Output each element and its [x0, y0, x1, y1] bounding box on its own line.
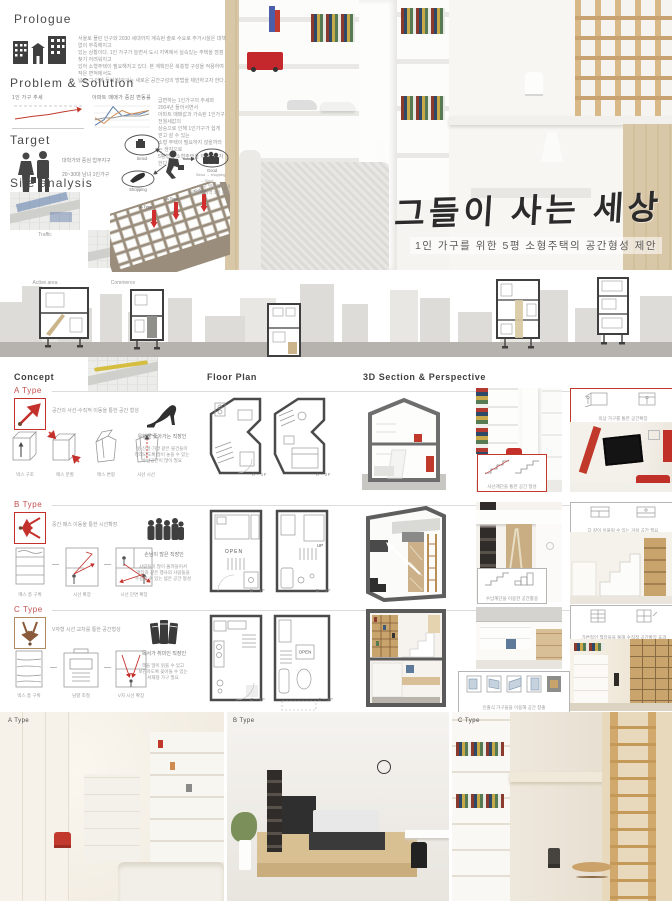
- red-diagonal-panel: [579, 426, 601, 474]
- headboard: [282, 796, 316, 834]
- wardrobe-wall: [0, 712, 70, 901]
- wood-table: [572, 862, 612, 872]
- white-bed: [118, 862, 224, 901]
- v-arrows-icon: [15, 618, 45, 648]
- site-axonometric: 인구 밀집지역 내 가로활성지역 3곳 선정 A Type B Type C T…: [110, 182, 230, 272]
- desc-line: 파티와 같은 행사의 사람들을: [136, 570, 189, 575]
- wall-clock-small: [546, 542, 554, 550]
- bed-frame: [309, 832, 385, 850]
- render-a-type: A Type: [0, 712, 224, 901]
- desc-line: 수납공간이 많이 필요: [142, 458, 182, 463]
- a-diagram-label: 박스 구조: [6, 472, 44, 478]
- sofa: [239, 162, 389, 270]
- a-diagram-label: 매스 변형: [87, 472, 125, 478]
- row-c-type: C Type V자형 시선 교차를 통한 공간형성: [0, 605, 672, 712]
- note-line: 급변하는 1인가구의 추세와 2004년 들어서면서: [158, 98, 214, 111]
- sofa-armrest: [239, 150, 261, 270]
- a-diagram-deform: [88, 424, 124, 466]
- plan-a-1f: [208, 396, 266, 476]
- plan-a1f-label: A - 1F: [252, 472, 267, 477]
- b-3d-axon: [362, 504, 450, 602]
- poster-title: 그들이 사는 세상: [393, 181, 663, 236]
- sightline-arrows-icon: [15, 513, 45, 543]
- prologue-heading: Prologue: [14, 12, 72, 26]
- red-chair: [54, 832, 71, 845]
- photo-book-spines: [476, 388, 488, 454]
- desc-line: 보관하도록 꽂아둘 수 있는: [138, 669, 187, 674]
- plant-flowers: [231, 812, 257, 842]
- row-b-type: B Type 중간 매스 이동을 통한 시선확장: [0, 500, 672, 605]
- a-concept-text: 공간의 사선·수직적 이동을 통한 공간 형성: [52, 408, 139, 415]
- target-line: 대학가와 중심 업무지구: [62, 158, 111, 164]
- storage-stair-sketch-icon: [483, 571, 541, 587]
- mid-shelf: [84, 774, 140, 862]
- black-tv-panel: [603, 434, 644, 466]
- c-type-concept-icon: [14, 617, 46, 649]
- c-type-label: C Type: [14, 605, 43, 614]
- stair-sketch-icon: [483, 457, 541, 475]
- c-diagram-label: 남향 조절: [60, 693, 102, 699]
- white-stairs-sketchrender: [570, 532, 672, 604]
- desc-line: 정리되도록 많이 놓을 수 있는: [135, 452, 190, 457]
- toy-car-white: [321, 102, 355, 111]
- legend-line: Seoul → shopping: [196, 173, 225, 177]
- render-c-type: C Type: [452, 712, 672, 901]
- a-diagram-split: [46, 424, 82, 466]
- plan-up-text: UP: [317, 543, 323, 548]
- a-diagram-label: 매스 분할: [46, 472, 84, 478]
- person-figure: [614, 673, 619, 686]
- counter-floor: [476, 660, 562, 669]
- c-pullout-caption: 인출식 가구들을 이용해 공간 창출: [483, 705, 546, 711]
- c-concept-text: V자형 시선 교차를 통한 공간형성: [52, 627, 121, 634]
- vase: [239, 840, 251, 870]
- chart1-title: 1인 가구 추세: [12, 94, 43, 101]
- plan-open-text: OPEN: [225, 549, 243, 555]
- b-top-callout: 다 같이 어울릴 수 있는 거실 공간 필요: [570, 502, 672, 536]
- a-persona-desc: 옷·신발·가방 같은 물건들이 정리되도록 많이 놓을 수 있는 수납공간이 많…: [130, 446, 194, 464]
- people-group-icon: [144, 516, 186, 548]
- axon-caption-line: 가로활성지역 3곳 선정: [188, 190, 230, 195]
- bookshelf-sketch-icon: [577, 608, 671, 624]
- b-concept-text: 중간 매스 이동을 통한 시선확장: [52, 522, 117, 529]
- c-perspective-photo: [476, 607, 562, 669]
- b-diagram-sight: [62, 544, 102, 590]
- desc-line: 책을 많이 읽을 수 있고: [142, 663, 184, 668]
- c-3d-section: [362, 607, 450, 709]
- site-analysis-heading: Site analysis: [10, 176, 93, 190]
- plan-c2f-label: C - 2F: [318, 697, 334, 702]
- loft-chair: [525, 72, 543, 94]
- a-top-callout: 의상 가구를 통한 공간확장: [570, 388, 672, 424]
- black-shelf-ladder: [267, 770, 282, 852]
- apartment-price-chart: [92, 100, 152, 132]
- section-perspective-header: 3D Section & Perspective: [363, 372, 486, 382]
- presentation-board: 그들이 사는 세상 1인 가구를 위한 5평 소형주택의 공간형성 제안 Pro…: [0, 0, 672, 901]
- a-persona-title: 유행을 좇아가는 직장인: [132, 434, 192, 441]
- c-persona-desc: 책을 많이 읽을 수 있고 보관하도록 꽂아둘 수 있는 서재형 가구 필요: [130, 663, 196, 681]
- shelf-unit: [150, 732, 224, 862]
- upper-cabinets: [476, 607, 562, 622]
- city-sections-strip: [0, 268, 672, 374]
- b-stair-caption: 수납계단을 이용한 공간활용: [486, 596, 538, 602]
- high-heel-icon: [146, 402, 178, 430]
- white-slab: [476, 510, 562, 524]
- c-persona-title: 독서가 취미인 직장인: [134, 651, 194, 658]
- desk-chair: [411, 842, 427, 868]
- book-row: [574, 643, 604, 651]
- map-traffic: [10, 192, 80, 230]
- prologue-line: 서울로 몰린 인구와 2030 세대까지 계속된 솔로 수요로 주거시설은 대책…: [78, 36, 226, 49]
- shelf-item-orange: [170, 762, 175, 770]
- traffic-overlay-2: [50, 212, 72, 222]
- open-shelves: [480, 625, 530, 649]
- ladder-rungs: [610, 712, 656, 901]
- prologue-line: 있는 상황이다. 1인 가구가 늘면서 도시 지역에서 실속있는 주택을 점점 …: [78, 50, 223, 63]
- node-label-seoul: Seoul: [137, 156, 148, 161]
- books-icon: [150, 617, 178, 647]
- toy-truck-wheel: [251, 67, 256, 72]
- plan-b-2f: UP: [274, 508, 330, 594]
- plan-a-2f: [272, 396, 330, 476]
- axon-label-a: A Type: [140, 204, 153, 209]
- book-row: [456, 742, 504, 756]
- plan-b1f-label: B - 1F: [250, 588, 265, 593]
- shelf-item-red: [158, 740, 163, 748]
- floorplan-header: Floor Plan: [207, 372, 257, 382]
- c-diagram-label: V자 시선 확장: [110, 693, 152, 699]
- render-c-label: C Type: [458, 718, 480, 724]
- problem-heading: Problem & Solution: [10, 76, 134, 90]
- render-a-label: A Type: [8, 718, 29, 724]
- axon-label-b: B Type: [166, 196, 179, 201]
- dash-separator: [104, 564, 111, 565]
- b-stair-callout: 수납계단을 이용한 공간활용: [477, 568, 547, 604]
- c-diagram-label: 박스 층 구획: [8, 693, 50, 699]
- desc-line: 수용할 수 있는 넓은 공간 형성: [135, 576, 191, 581]
- blue-box: [506, 639, 516, 649]
- buildings-icon: [12, 34, 70, 64]
- shelf-item-gray: [186, 784, 192, 792]
- desc-line: 옷·신발·가방 같은 물건들이: [136, 446, 187, 451]
- map-label-traffic: Traffic: [10, 232, 80, 238]
- note-line: 아파트 매매값과 가속된 1인가구 전월세값의: [158, 112, 225, 125]
- loft-ladder-rungs: [575, 0, 672, 118]
- b-diagram-label: 매스 층 구획: [10, 592, 50, 598]
- desk: [405, 830, 449, 838]
- single-household-trend-chart: [12, 102, 84, 129]
- c-diagram-louver: [60, 647, 102, 691]
- b-diagram-label: 시선 확장: [62, 592, 102, 598]
- red-wardrobe: [663, 430, 672, 462]
- toy-truck-wheel: [273, 67, 278, 72]
- plan-c-1f: [208, 613, 264, 703]
- a-3d-section: [362, 394, 446, 490]
- plan-open-text: OPEN: [299, 650, 312, 655]
- a-diagram-label: 사선 시선: [127, 472, 165, 478]
- hero-books-mid-1: [401, 8, 445, 34]
- wood-shelf-grid: [630, 639, 672, 711]
- b-persona-desc: 사람들이 많이 몰려들어서 파티와 같은 행사의 사람들을 수용할 수 있는 넓…: [130, 564, 196, 582]
- hero-books-mid-2: [401, 96, 445, 120]
- c-diagram-box: [12, 647, 46, 691]
- toy-car-silver: [287, 100, 317, 110]
- a-perspective-photo-right: [570, 422, 672, 492]
- wardrobe-sketch-icon: [577, 391, 669, 407]
- b-type-label: B Type: [14, 500, 42, 509]
- render-b-label: B Type: [233, 718, 255, 724]
- book-row: [456, 794, 504, 808]
- pullout-furniture-sketch-icon: [465, 674, 563, 694]
- axon-caption-line: 인구 밀집지역 내: [199, 184, 230, 189]
- row-a-type: A Type 공간의 사선·수직적 이동을 통한 공간 형성 박스 구조: [0, 386, 672, 500]
- desc-line: 서재형 가구 필요: [147, 675, 178, 680]
- toy-robot-arm: [275, 10, 280, 32]
- plan-b2f-label: B - 2F: [316, 588, 331, 593]
- poster-subtitle: 1인 가구를 위한 5평 소형주택의 공간형성 제안: [410, 237, 662, 254]
- target-heading: Target: [10, 133, 51, 147]
- a-stair-caption: 사선계단을 통한 공간 형성: [487, 484, 536, 490]
- dark-chair: [548, 848, 560, 864]
- photo-floor: [570, 703, 672, 711]
- c-perspective-photo-right: [570, 639, 672, 711]
- plan-b-1f: OPEN: [208, 508, 264, 594]
- dash-separator: [50, 667, 57, 668]
- c-pullout-callout: 인출식 가구들을 이용해 공간 창출: [458, 671, 570, 713]
- b-diagram-mass: [12, 544, 48, 588]
- a-diagram-box: [8, 424, 42, 466]
- a-stair-callout: 사선계단을 통한 공간 형성: [477, 454, 547, 492]
- photo-floor: [570, 483, 672, 492]
- desc-line: 사람들이 많이 몰려들어서: [139, 564, 187, 569]
- plan-a2f-label: A - 2F: [316, 472, 331, 477]
- a-type-label: A Type: [14, 386, 42, 395]
- b-diagram-label: 시선 단면 확장: [112, 592, 156, 598]
- a-top-caption: 의상 가구를 통한 공간확장: [598, 416, 647, 422]
- b-type-concept-icon: [14, 512, 46, 544]
- dash-separator: [104, 667, 111, 668]
- concept-header: Concept: [14, 372, 54, 382]
- b-persona-title: 손님이 많은 직장인: [134, 552, 194, 559]
- loft-sketch-icon: [577, 505, 669, 519]
- white-shelf-wall: [574, 655, 608, 703]
- c-top-callout: 가변적인 책장들을 통해 수직적 공간확장 효과: [570, 605, 672, 643]
- render-b-type: B Type: [227, 712, 449, 901]
- hero-render: 그들이 사는 세상 1인 가구를 위한 5평 소형주택의 공간형성 제안: [225, 0, 672, 270]
- b-perspective-photo-right: [570, 532, 672, 604]
- axon-caption: 인구 밀집지역 내 가로활성지역 3곳 선정: [174, 184, 230, 196]
- wall-frame: [648, 430, 660, 440]
- hero-books-top: [311, 14, 355, 42]
- wall-clock: [377, 760, 391, 774]
- plan-c1f-label: C - 1F: [250, 697, 266, 702]
- dash-separator: [52, 564, 59, 565]
